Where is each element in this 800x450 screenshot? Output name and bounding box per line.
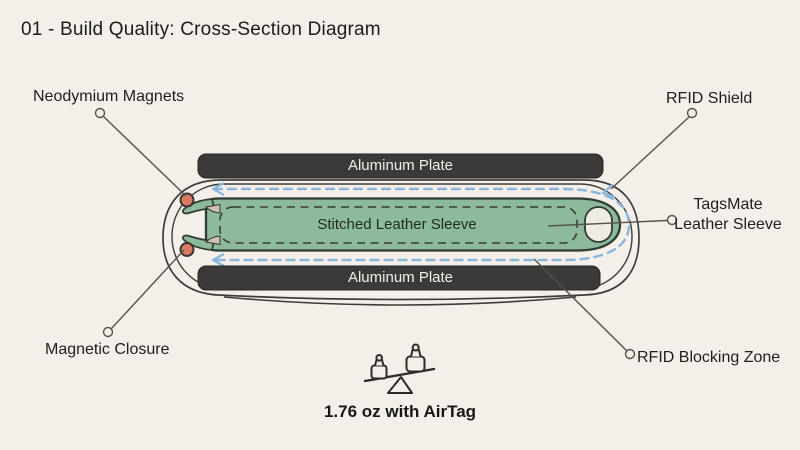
scale-icon [365,345,434,394]
magnet-top [181,194,194,207]
weight-large [407,345,425,372]
scale-fulcrum [388,377,412,393]
leader-rfid-shield [611,109,697,190]
label-tagsmate-leather-sleeve: TagsMate Leather Sleeve [668,195,788,235]
label-tagsmate-line1: TagsMate [693,196,762,213]
magnets [181,194,194,257]
label-neodymium-magnets: Neodymium Magnets [33,87,184,107]
weight-caption: 1.76 oz with AirTag [300,402,500,422]
leader-magnetic-closure [104,250,185,337]
weight-small [372,355,387,379]
leader-neodymium-magnets [96,109,187,197]
label-rfid-blocking-zone: RFID Blocking Zone [637,348,780,368]
label-stitched-leather-sleeve: Stitched Leather Sleeve [217,216,577,233]
page-title: 01 - Build Quality: Cross-Section Diagra… [21,19,381,41]
slide-build-quality: 01 - Build Quality: Cross-Section Diagra… [0,0,800,450]
label-aluminum-plate-bottom: Aluminum Plate [198,269,603,286]
label-aluminum-plate-top: Aluminum Plate [198,157,603,174]
label-tagsmate-line2: Leather Sleeve [674,216,782,233]
magnet-bottom [181,243,194,256]
label-rfid-shield: RFID Shield [666,89,752,109]
label-magnetic-closure: Magnetic Closure [45,340,170,360]
